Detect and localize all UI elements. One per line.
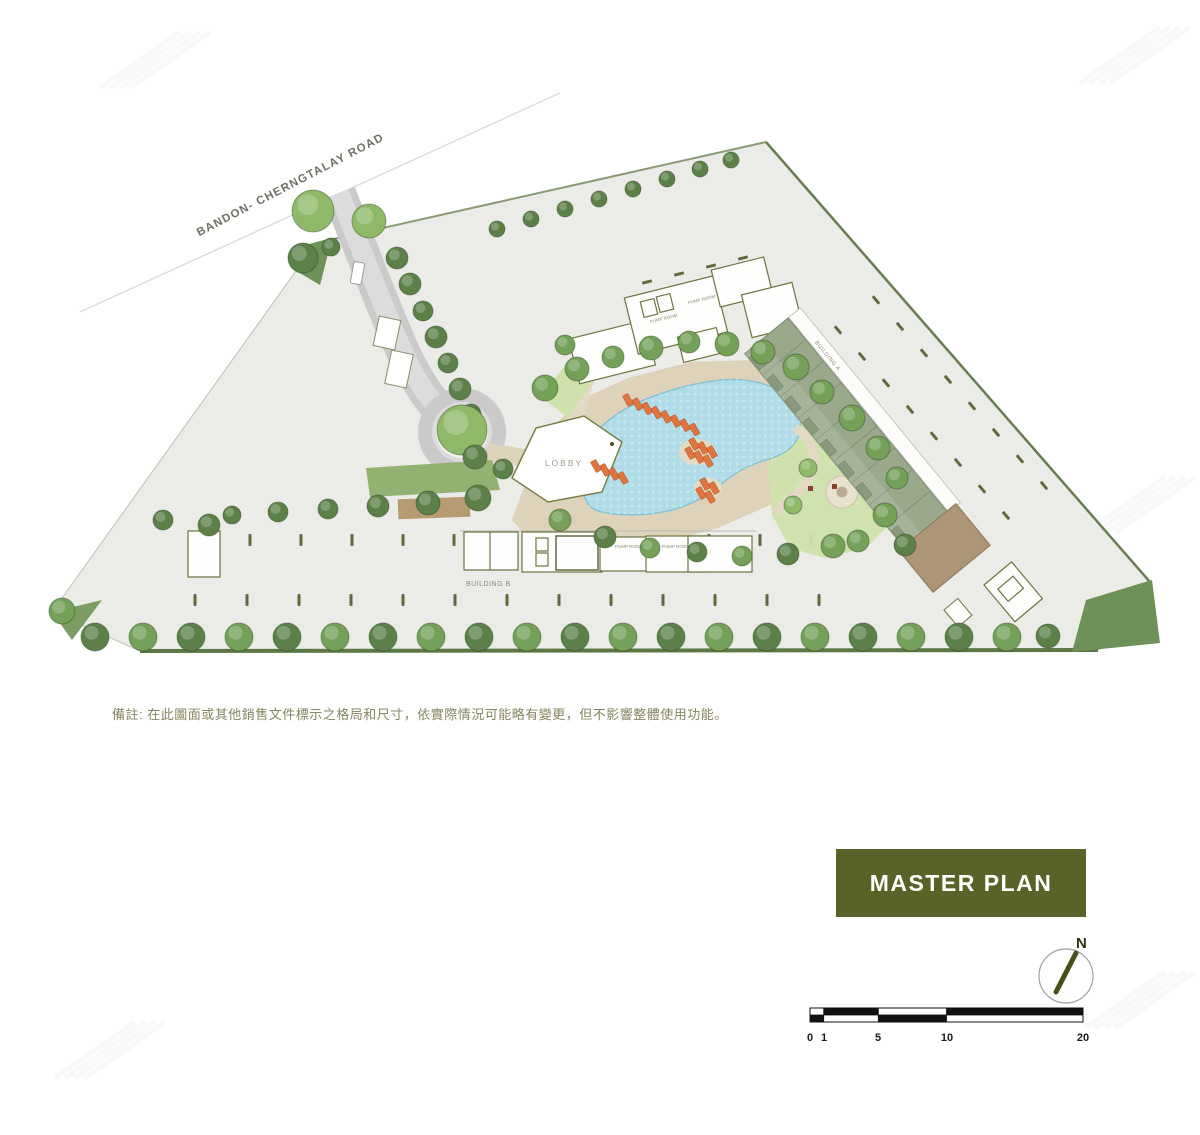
pump-room-label: PUMP ROOM xyxy=(662,544,690,549)
watermark-stroke xyxy=(110,32,190,88)
watermark-stroke xyxy=(1105,972,1185,1028)
watermark-stroke xyxy=(1095,477,1175,533)
tree-highlight xyxy=(661,626,675,640)
tree-highlight xyxy=(466,447,478,459)
tree-highlight xyxy=(517,626,531,640)
tree-highlight xyxy=(949,626,963,640)
tree-highlight xyxy=(535,378,548,391)
scale-bar: 0 1 5 10 20 xyxy=(807,1008,1089,1044)
tree-highlight xyxy=(292,246,307,261)
tree-highlight xyxy=(681,333,692,344)
tree-highlight xyxy=(491,223,499,231)
parking-dash xyxy=(714,594,717,606)
tree-highlight xyxy=(997,626,1011,640)
scale-tick-label: 5 xyxy=(875,1032,881,1044)
tree-highlight xyxy=(443,410,468,435)
scale-segment xyxy=(824,1015,879,1022)
compass-north-label: N xyxy=(1076,935,1087,952)
tree-highlight xyxy=(181,626,195,640)
scale-tick-label: 1 xyxy=(821,1032,827,1044)
scale-segment xyxy=(947,1008,1084,1015)
tree-highlight xyxy=(452,380,463,391)
tree-highlight xyxy=(824,536,836,548)
building-b-label: BUILDING B xyxy=(466,581,511,588)
fire-pit xyxy=(837,487,848,498)
tree-highlight xyxy=(558,337,568,347)
garden-seat xyxy=(832,484,837,489)
tree-highlight xyxy=(593,193,601,201)
tree-highlight xyxy=(565,626,579,640)
watermark-stroke xyxy=(1095,972,1175,1028)
master-plan-title: MASTER PLAN xyxy=(870,870,1053,897)
watermark-stroke xyxy=(65,1022,145,1078)
tree-highlight xyxy=(897,536,908,547)
parking-dash xyxy=(350,594,353,606)
compass: N xyxy=(1039,935,1093,1003)
parking-dash xyxy=(766,594,769,606)
scale-segment xyxy=(947,1015,1084,1022)
tree-highlight xyxy=(52,601,65,614)
building-b-block xyxy=(522,532,602,572)
garden-seat xyxy=(808,486,813,491)
parking-dash xyxy=(402,534,405,546)
watermark-stroke xyxy=(120,32,200,88)
tree-highlight xyxy=(416,303,426,313)
master-plan-drawing: BANDON- CHERNGTALAY ROAD xyxy=(0,0,1200,1135)
parking-dash xyxy=(558,594,561,606)
parking-dash xyxy=(402,594,405,606)
tree-highlight xyxy=(271,504,281,514)
pump-room-label: PUMP ROOM xyxy=(615,544,643,549)
parking-dash xyxy=(246,594,249,606)
tree-highlight xyxy=(780,545,791,556)
tree-highlight xyxy=(370,497,381,508)
tree-highlight xyxy=(441,355,451,365)
tree-highlight xyxy=(786,498,795,507)
tree-highlight xyxy=(642,338,654,350)
tree-highlight xyxy=(757,626,771,640)
tree-highlight xyxy=(133,626,147,640)
page: BANDON- CHERNGTALAY ROAD xyxy=(0,0,1200,1135)
tree-highlight xyxy=(156,512,166,522)
tree-highlight xyxy=(643,540,653,550)
tree-highlight xyxy=(718,334,730,346)
tree-highlight xyxy=(754,342,766,354)
scale-segment xyxy=(810,1015,824,1022)
scale-segment xyxy=(810,1008,824,1015)
parking-dash xyxy=(249,534,252,546)
tree-highlight xyxy=(568,359,580,371)
tree-highlight xyxy=(225,508,234,517)
tree-highlight xyxy=(694,163,702,171)
scale-labels: 0 1 5 10 20 xyxy=(807,1032,1089,1044)
tree-highlight xyxy=(277,626,291,640)
tree-highlight xyxy=(496,461,506,471)
building-b-block xyxy=(188,531,220,577)
tree-highlight xyxy=(201,516,212,527)
tree-highlight xyxy=(559,203,567,211)
lobby-label: LOBBY xyxy=(545,458,583,468)
tree-highlight xyxy=(889,469,900,480)
parking-dash xyxy=(818,594,821,606)
parking-dash xyxy=(351,534,354,546)
watermark-stroke xyxy=(1105,477,1185,533)
scale-segment xyxy=(824,1008,879,1015)
tree-highlight xyxy=(661,173,669,181)
tree-highlight xyxy=(1039,626,1051,638)
tree-highlight xyxy=(613,626,627,640)
watermark-stroke xyxy=(1090,27,1170,83)
watermark-stroke xyxy=(1100,27,1180,83)
tree-highlight xyxy=(525,213,533,221)
tree-highlight xyxy=(786,357,799,370)
master-plan-title-box: MASTER PLAN xyxy=(836,849,1086,917)
tree-highlight xyxy=(709,626,723,640)
tree-highlight xyxy=(869,438,881,450)
tree-highlight xyxy=(605,348,616,359)
tree-highlight xyxy=(468,488,481,501)
parking-dash xyxy=(453,534,456,546)
parking-dash xyxy=(506,594,509,606)
tree-highlight xyxy=(421,626,435,640)
tree-highlight xyxy=(402,275,413,286)
compass-needle xyxy=(1056,953,1076,992)
tree-highlight xyxy=(725,154,733,162)
parking-dash xyxy=(610,594,613,606)
tree-highlight xyxy=(627,183,635,191)
tree-highlight xyxy=(842,408,855,421)
disclaimer-note: 備註: 在此圖面或其他銷售文件標示之格局和尺寸，依實際情況可能略有變更，但不影響… xyxy=(112,706,812,724)
tree-highlight xyxy=(876,505,888,517)
watermark-stroke xyxy=(75,1022,155,1078)
tree-highlight xyxy=(597,528,608,539)
parking-dash xyxy=(454,594,457,606)
tree-highlight xyxy=(419,493,431,505)
tree-highlight xyxy=(801,461,810,470)
tree-highlight xyxy=(324,240,333,249)
tree-highlight xyxy=(901,626,915,640)
parking-dash xyxy=(194,594,197,606)
tree-highlight xyxy=(229,626,243,640)
tree-highlight xyxy=(813,382,825,394)
building-b-block xyxy=(464,532,518,570)
parking-dash xyxy=(662,594,665,606)
tree-highlight xyxy=(853,626,867,640)
parking-dash xyxy=(759,534,762,546)
tree-highlight xyxy=(321,501,331,511)
tree-highlight xyxy=(850,532,861,543)
parking-dash xyxy=(298,594,301,606)
tree-highlight xyxy=(690,544,700,554)
scale-tick-label: 20 xyxy=(1077,1032,1089,1044)
tree-highlight xyxy=(428,328,439,339)
scale-tick-label: 10 xyxy=(941,1032,953,1044)
tree-highlight xyxy=(325,626,339,640)
tree-highlight xyxy=(85,626,99,640)
tree-highlight xyxy=(356,207,373,224)
tree-highlight xyxy=(735,548,745,558)
scale-segment xyxy=(878,1008,946,1015)
lobby-column xyxy=(610,442,614,446)
scale-segment xyxy=(878,1015,946,1022)
parking-dash xyxy=(300,534,303,546)
tree-highlight xyxy=(389,249,400,260)
tree-highlight xyxy=(373,626,387,640)
tree-highlight xyxy=(552,511,563,522)
tree-highlight xyxy=(297,194,318,215)
tree-highlight xyxy=(469,626,483,640)
tree-highlight xyxy=(805,626,819,640)
scale-tick-label: 0 xyxy=(807,1032,813,1044)
